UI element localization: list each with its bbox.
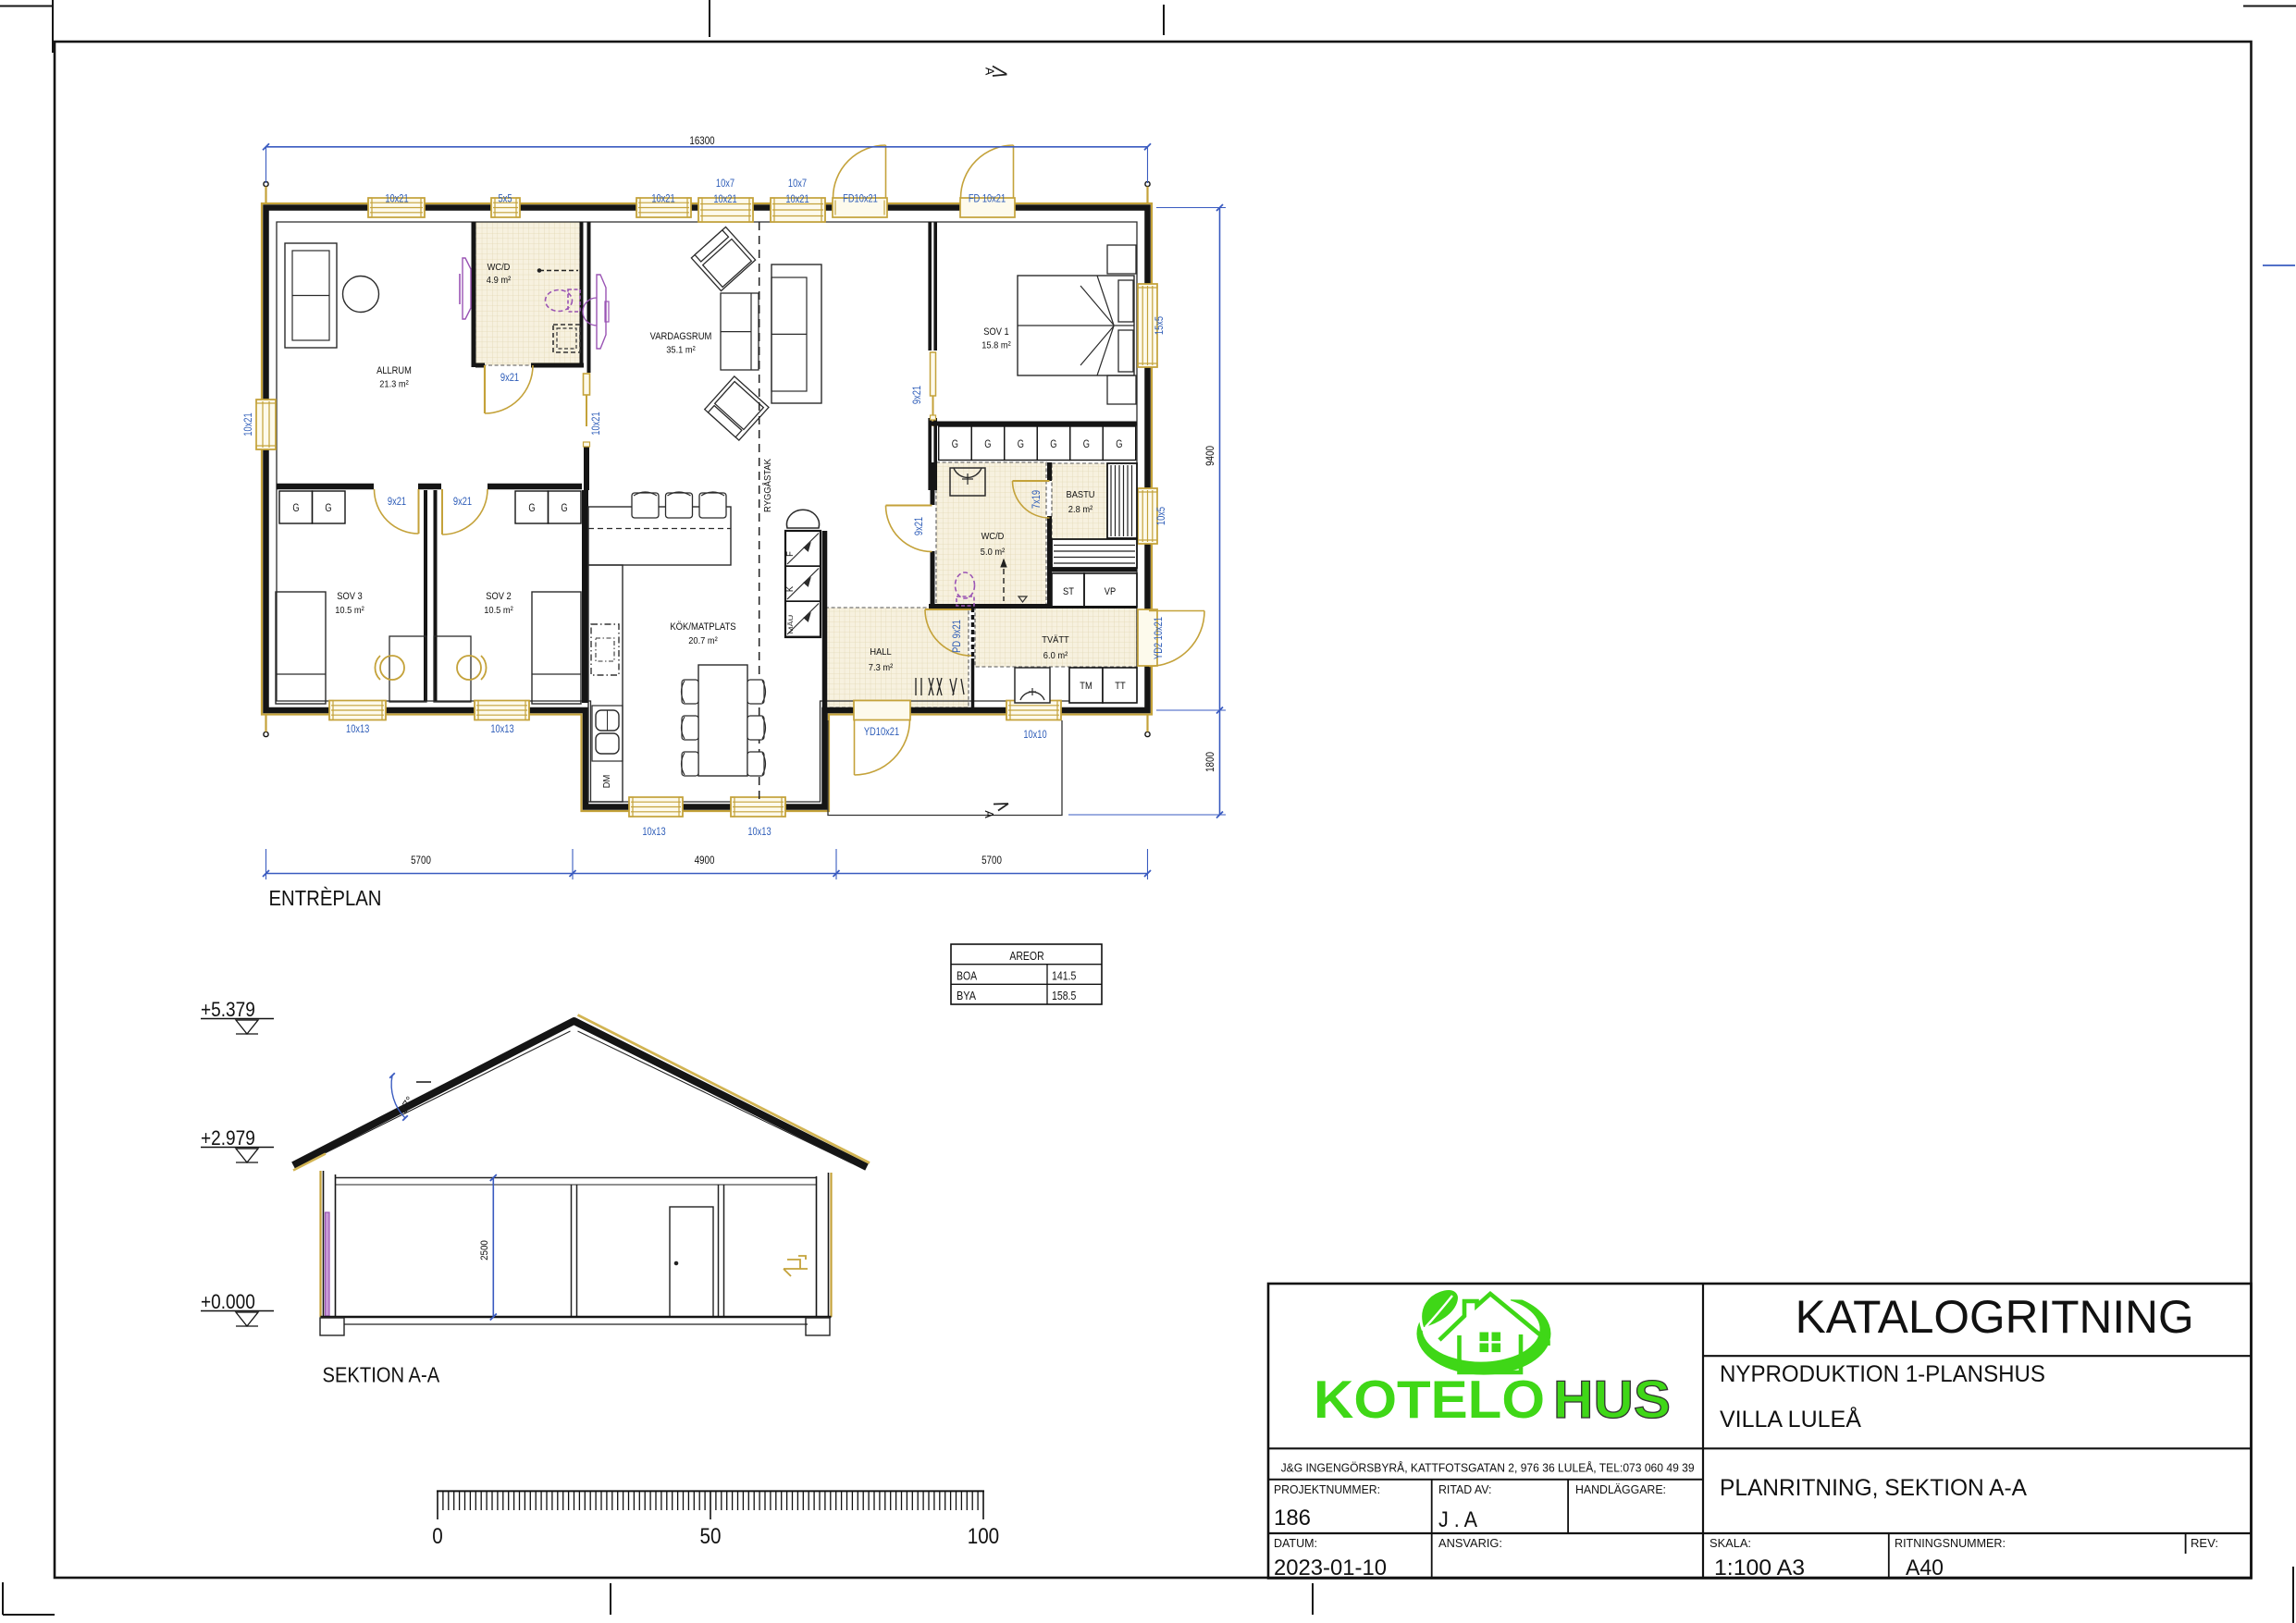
svg-text:50: 50 — [700, 1524, 722, 1549]
svg-text:MÅU: MÅU — [786, 615, 795, 634]
svg-text:DATUM:: DATUM: — [1274, 1537, 1317, 1550]
svg-text:DM: DM — [602, 775, 612, 789]
svg-text:141.5: 141.5 — [1052, 970, 1076, 983]
svg-text:7x19: 7x19 — [1031, 490, 1043, 509]
svg-text:KOTELO: KOTELO — [1314, 1371, 1545, 1430]
svg-text:5.0 m²: 5.0 m² — [981, 547, 1006, 558]
svg-text:G: G — [984, 439, 991, 450]
svg-text:9x21: 9x21 — [912, 386, 923, 404]
svg-text:5x5: 5x5 — [499, 194, 512, 205]
svg-text:TM: TM — [1080, 681, 1092, 692]
svg-text:10.5 m²: 10.5 m² — [335, 605, 364, 616]
svg-text:AREOR: AREOR — [1009, 950, 1043, 963]
svg-text:FD 10x21: FD 10x21 — [969, 194, 1006, 205]
svg-text:BOA: BOA — [957, 970, 978, 983]
svg-text:1:100 A3: 1:100 A3 — [1714, 1555, 1805, 1580]
svg-text:9x21: 9x21 — [388, 497, 406, 508]
svg-text:SOV 2: SOV 2 — [486, 591, 511, 602]
svg-text:G: G — [1116, 439, 1122, 450]
svg-text:ANSVARIG:: ANSVARIG: — [1438, 1537, 1502, 1550]
svg-text:35.1 m²: 35.1 m² — [666, 345, 696, 356]
svg-text:9x21: 9x21 — [500, 373, 519, 384]
svg-text:158.5: 158.5 — [1052, 990, 1076, 1002]
svg-text:A: A — [983, 68, 996, 76]
svg-text:VARDAGSRUM: VARDAGSRUM — [650, 331, 712, 342]
svg-text:10x13: 10x13 — [490, 724, 513, 735]
svg-text:5700: 5700 — [981, 855, 1002, 867]
svg-text:10x21: 10x21 — [591, 412, 602, 435]
svg-text:VILLA LULEÅ: VILLA LULEÅ — [1720, 1405, 1861, 1432]
svg-text:+0.000: +0.000 — [201, 1290, 255, 1313]
svg-text:G: G — [325, 503, 331, 514]
svg-text:SOV 1: SOV 1 — [983, 326, 1008, 338]
svg-text:TT: TT — [1115, 681, 1126, 692]
svg-text:NYPRODUKTION 1-PLANSHUS: NYPRODUKTION 1-PLANSHUS — [1720, 1361, 2045, 1387]
svg-text:100: 100 — [968, 1524, 1000, 1549]
svg-text:10.5 m²: 10.5 m² — [484, 605, 513, 616]
svg-text:BYA: BYA — [957, 990, 977, 1002]
svg-text:SOV 3: SOV 3 — [337, 591, 362, 602]
svg-text:KATALOGRITNING: KATALOGRITNING — [1796, 1291, 2194, 1343]
svg-text:G: G — [1018, 439, 1024, 450]
svg-text:RITAD AV:: RITAD AV: — [1438, 1483, 1492, 1496]
svg-text:HALL: HALL — [870, 646, 891, 658]
svg-text:9x21: 9x21 — [453, 497, 472, 508]
svg-text:F: F — [785, 551, 796, 557]
svg-text:ALLRUM: ALLRUM — [376, 365, 412, 376]
svg-text:15x5: 15x5 — [1154, 316, 1166, 335]
svg-text:ST: ST — [1063, 586, 1074, 597]
svg-text:YD2 10x21: YD2 10x21 — [1154, 617, 1165, 659]
svg-text:ENTRÈPLAN: ENTRÈPLAN — [269, 886, 382, 910]
svg-text:RYGGÅSTAK: RYGGÅSTAK — [761, 459, 773, 512]
svg-text:7.3 m²: 7.3 m² — [869, 663, 894, 673]
svg-text:TVÄTT: TVÄTT — [1042, 634, 1069, 646]
svg-text:10x10: 10x10 — [1023, 730, 1046, 741]
svg-text:10x13: 10x13 — [747, 827, 771, 838]
svg-text:10x5: 10x5 — [1156, 507, 1167, 525]
svg-text:J . A: J . A — [1438, 1507, 1477, 1532]
svg-text:10x13: 10x13 — [346, 724, 369, 735]
svg-text:10x21: 10x21 — [785, 194, 809, 205]
svg-text:SKALA:: SKALA: — [1710, 1537, 1751, 1550]
svg-text:20.7 m²: 20.7 m² — [688, 635, 718, 646]
svg-text:10x7: 10x7 — [716, 178, 734, 190]
svg-text:10x7: 10x7 — [788, 178, 807, 190]
svg-text:+5.379: +5.379 — [201, 998, 255, 1021]
svg-text:REV:: REV: — [2191, 1537, 2218, 1550]
svg-text:9400: 9400 — [1205, 446, 1216, 466]
svg-text:1800: 1800 — [1205, 752, 1216, 772]
svg-text:WC/D: WC/D — [981, 531, 1005, 542]
svg-text:A: A — [982, 810, 995, 818]
svg-text:10x21: 10x21 — [651, 194, 674, 205]
svg-text:4.9 m²: 4.9 m² — [487, 276, 512, 286]
svg-text:FD10x21: FD10x21 — [843, 194, 878, 205]
svg-text:HUS: HUS — [1553, 1371, 1671, 1430]
svg-text:21.3 m²: 21.3 m² — [379, 379, 409, 390]
svg-text:HANDLÄGGARE:: HANDLÄGGARE: — [1575, 1483, 1666, 1496]
svg-text:G: G — [1050, 439, 1056, 450]
svg-text:2.8 m²: 2.8 m² — [1068, 505, 1093, 515]
svg-text:16300: 16300 — [689, 136, 714, 147]
svg-text:SEKTION A-A: SEKTION A-A — [323, 1363, 440, 1387]
svg-text:BASTU: BASTU — [1067, 489, 1095, 500]
svg-text:KÖK/MATPLATS: KÖK/MATPLATS — [670, 621, 735, 633]
svg-text:10x13: 10x13 — [642, 827, 665, 838]
svg-text:G: G — [528, 503, 535, 514]
svg-text:RITNINGSNUMMER:: RITNINGSNUMMER: — [1895, 1537, 2006, 1550]
svg-text:15.8 m²: 15.8 m² — [981, 340, 1011, 351]
svg-text:J&G INGENGÖRSBYRÅ, KATTFOTSGAT: J&G INGENGÖRSBYRÅ, KATTFOTSGATAN 2, 976 … — [1281, 1461, 1695, 1475]
svg-text:10x21: 10x21 — [713, 194, 736, 205]
svg-text:186: 186 — [1274, 1506, 1311, 1531]
svg-text:K: K — [785, 586, 796, 593]
svg-text:6.0 m²: 6.0 m² — [1043, 651, 1068, 661]
svg-text:10x21: 10x21 — [385, 194, 408, 205]
svg-text:YD10x21: YD10x21 — [864, 727, 899, 738]
svg-text:9x21: 9x21 — [914, 517, 925, 535]
svg-text:2023-01-10: 2023-01-10 — [1274, 1555, 1387, 1580]
svg-text:G: G — [1083, 439, 1090, 450]
svg-text:VP: VP — [1105, 586, 1116, 597]
svg-text:4900: 4900 — [695, 855, 715, 867]
svg-text:PROJEKTNUMMER:: PROJEKTNUMMER: — [1274, 1483, 1380, 1496]
svg-text:PD 9x21: PD 9x21 — [952, 620, 963, 653]
svg-text:G: G — [952, 439, 958, 450]
svg-text:0: 0 — [432, 1524, 443, 1549]
svg-text:G: G — [561, 503, 567, 514]
svg-text:+2.979: +2.979 — [201, 1126, 255, 1150]
svg-text:G: G — [292, 503, 299, 514]
svg-text:PLANRITNING, SEKTION A-A: PLANRITNING, SEKTION A-A — [1720, 1475, 2027, 1501]
svg-text:5700: 5700 — [411, 855, 431, 867]
svg-text:10x21: 10x21 — [243, 412, 254, 436]
svg-text:WC/D: WC/D — [488, 262, 511, 273]
svg-text:2500: 2500 — [479, 1240, 490, 1260]
svg-text:A40: A40 — [1906, 1555, 1944, 1580]
